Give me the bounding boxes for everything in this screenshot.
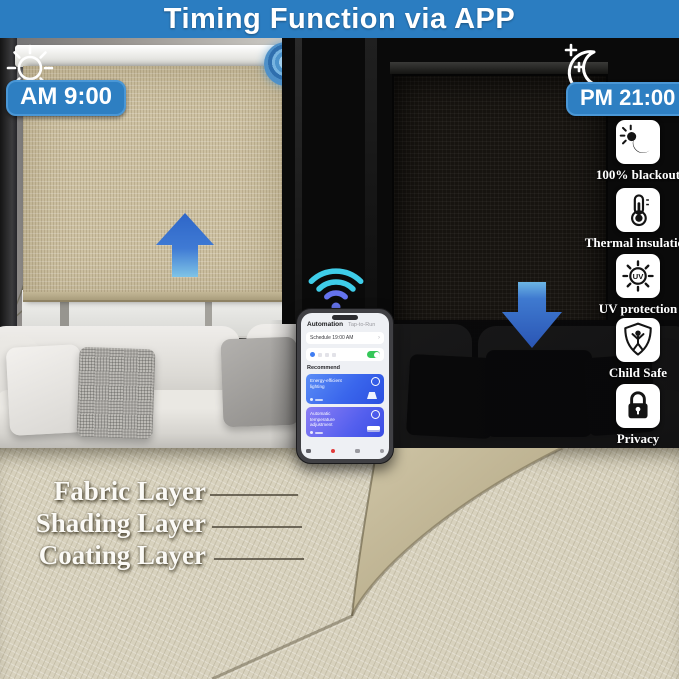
feature-label: Child Safe xyxy=(609,365,667,381)
recommend-heading: Recommend xyxy=(307,365,383,371)
card-title: Automatic temperature adjustment xyxy=(310,411,354,428)
automation-row xyxy=(306,348,384,361)
nav-profile-icon[interactable] xyxy=(380,449,385,454)
shade-hem-bar xyxy=(23,292,282,302)
feature-label: 100% blackout xyxy=(596,167,679,183)
pillow xyxy=(76,347,155,440)
arrow-up-icon xyxy=(156,213,214,277)
pointer-line xyxy=(214,558,304,560)
feature-blackout: 100% blackout xyxy=(586,120,679,183)
device-icon xyxy=(325,353,329,357)
card-title: Energy-efficient lighting xyxy=(310,378,354,389)
pillow xyxy=(6,344,85,436)
time-badge-pm: PM 21:00 xyxy=(566,82,679,116)
recommend-card-temperature[interactable]: Automatic temperature adjustment xyxy=(306,407,384,437)
product-infographic: Timing Function via APP xyxy=(0,0,679,679)
padlock-icon xyxy=(616,384,660,428)
blackout-icon xyxy=(616,120,660,164)
child-shield-icon xyxy=(616,318,660,362)
phone-screen: Automation Tap-to-Run Schedule 19:00 AM … xyxy=(301,313,389,459)
page-title: Timing Function via APP xyxy=(164,3,515,36)
thermometer-icon xyxy=(616,188,660,232)
layer-label-coating: Coating Layer xyxy=(0,540,206,571)
tab-tap-to-run[interactable]: Tap-to-Run xyxy=(348,322,375,328)
feature-privacy: Privacy xyxy=(586,384,679,447)
svg-text:UV: UV xyxy=(633,272,645,281)
feature-label: Privacy xyxy=(617,431,660,447)
recommend-card-lighting[interactable]: Energy-efficient lighting xyxy=(306,374,384,404)
feature-label: Thermal insulation xyxy=(585,235,679,251)
smartphone: Automation Tap-to-Run Schedule 19:00 AM … xyxy=(296,308,394,464)
nav-scene-icon[interactable] xyxy=(355,449,360,454)
layer-label-fabric: Fabric Layer xyxy=(0,476,206,507)
layer-label-shading: Shading Layer xyxy=(0,508,206,539)
chevron-right-icon: › xyxy=(378,335,380,341)
feature-thermal: Thermal insulation xyxy=(586,188,679,251)
feature-label: UV protection xyxy=(599,301,678,317)
lamp-icon xyxy=(367,392,377,399)
feature-uv: UV UV protection xyxy=(586,254,679,317)
device-icon xyxy=(332,353,336,357)
schedule-card[interactable]: Schedule 19:00 AM › xyxy=(306,332,384,344)
tab-automation[interactable]: Automation xyxy=(307,321,343,328)
arrow-down-icon xyxy=(502,282,562,348)
card-meta xyxy=(310,431,323,434)
title-banner: Timing Function via APP xyxy=(0,0,679,38)
nav-smart-icon[interactable] xyxy=(331,449,336,454)
device-icon xyxy=(318,353,322,357)
air-conditioner-icon xyxy=(367,426,380,432)
feature-child-safe: Child Safe xyxy=(586,318,679,381)
phone-notch xyxy=(332,315,358,320)
pointer-line xyxy=(212,526,302,528)
device-dot-icon xyxy=(310,352,315,357)
uv-sun-icon: UV xyxy=(616,254,660,298)
app-tabs: Automation Tap-to-Run xyxy=(307,321,383,328)
card-meta xyxy=(310,398,323,401)
time-badge-am: AM 9:00 xyxy=(6,80,126,116)
pointer-line xyxy=(210,494,298,496)
schedule-toggle[interactable] xyxy=(367,351,380,358)
wifi-icon xyxy=(296,254,376,314)
schedule-text: Schedule 19:00 AM xyxy=(310,335,353,341)
power-ring-icon[interactable] xyxy=(371,410,380,419)
bottom-nav xyxy=(306,446,384,456)
power-ring-icon[interactable] xyxy=(371,377,380,386)
nav-home-icon[interactable] xyxy=(306,449,311,454)
